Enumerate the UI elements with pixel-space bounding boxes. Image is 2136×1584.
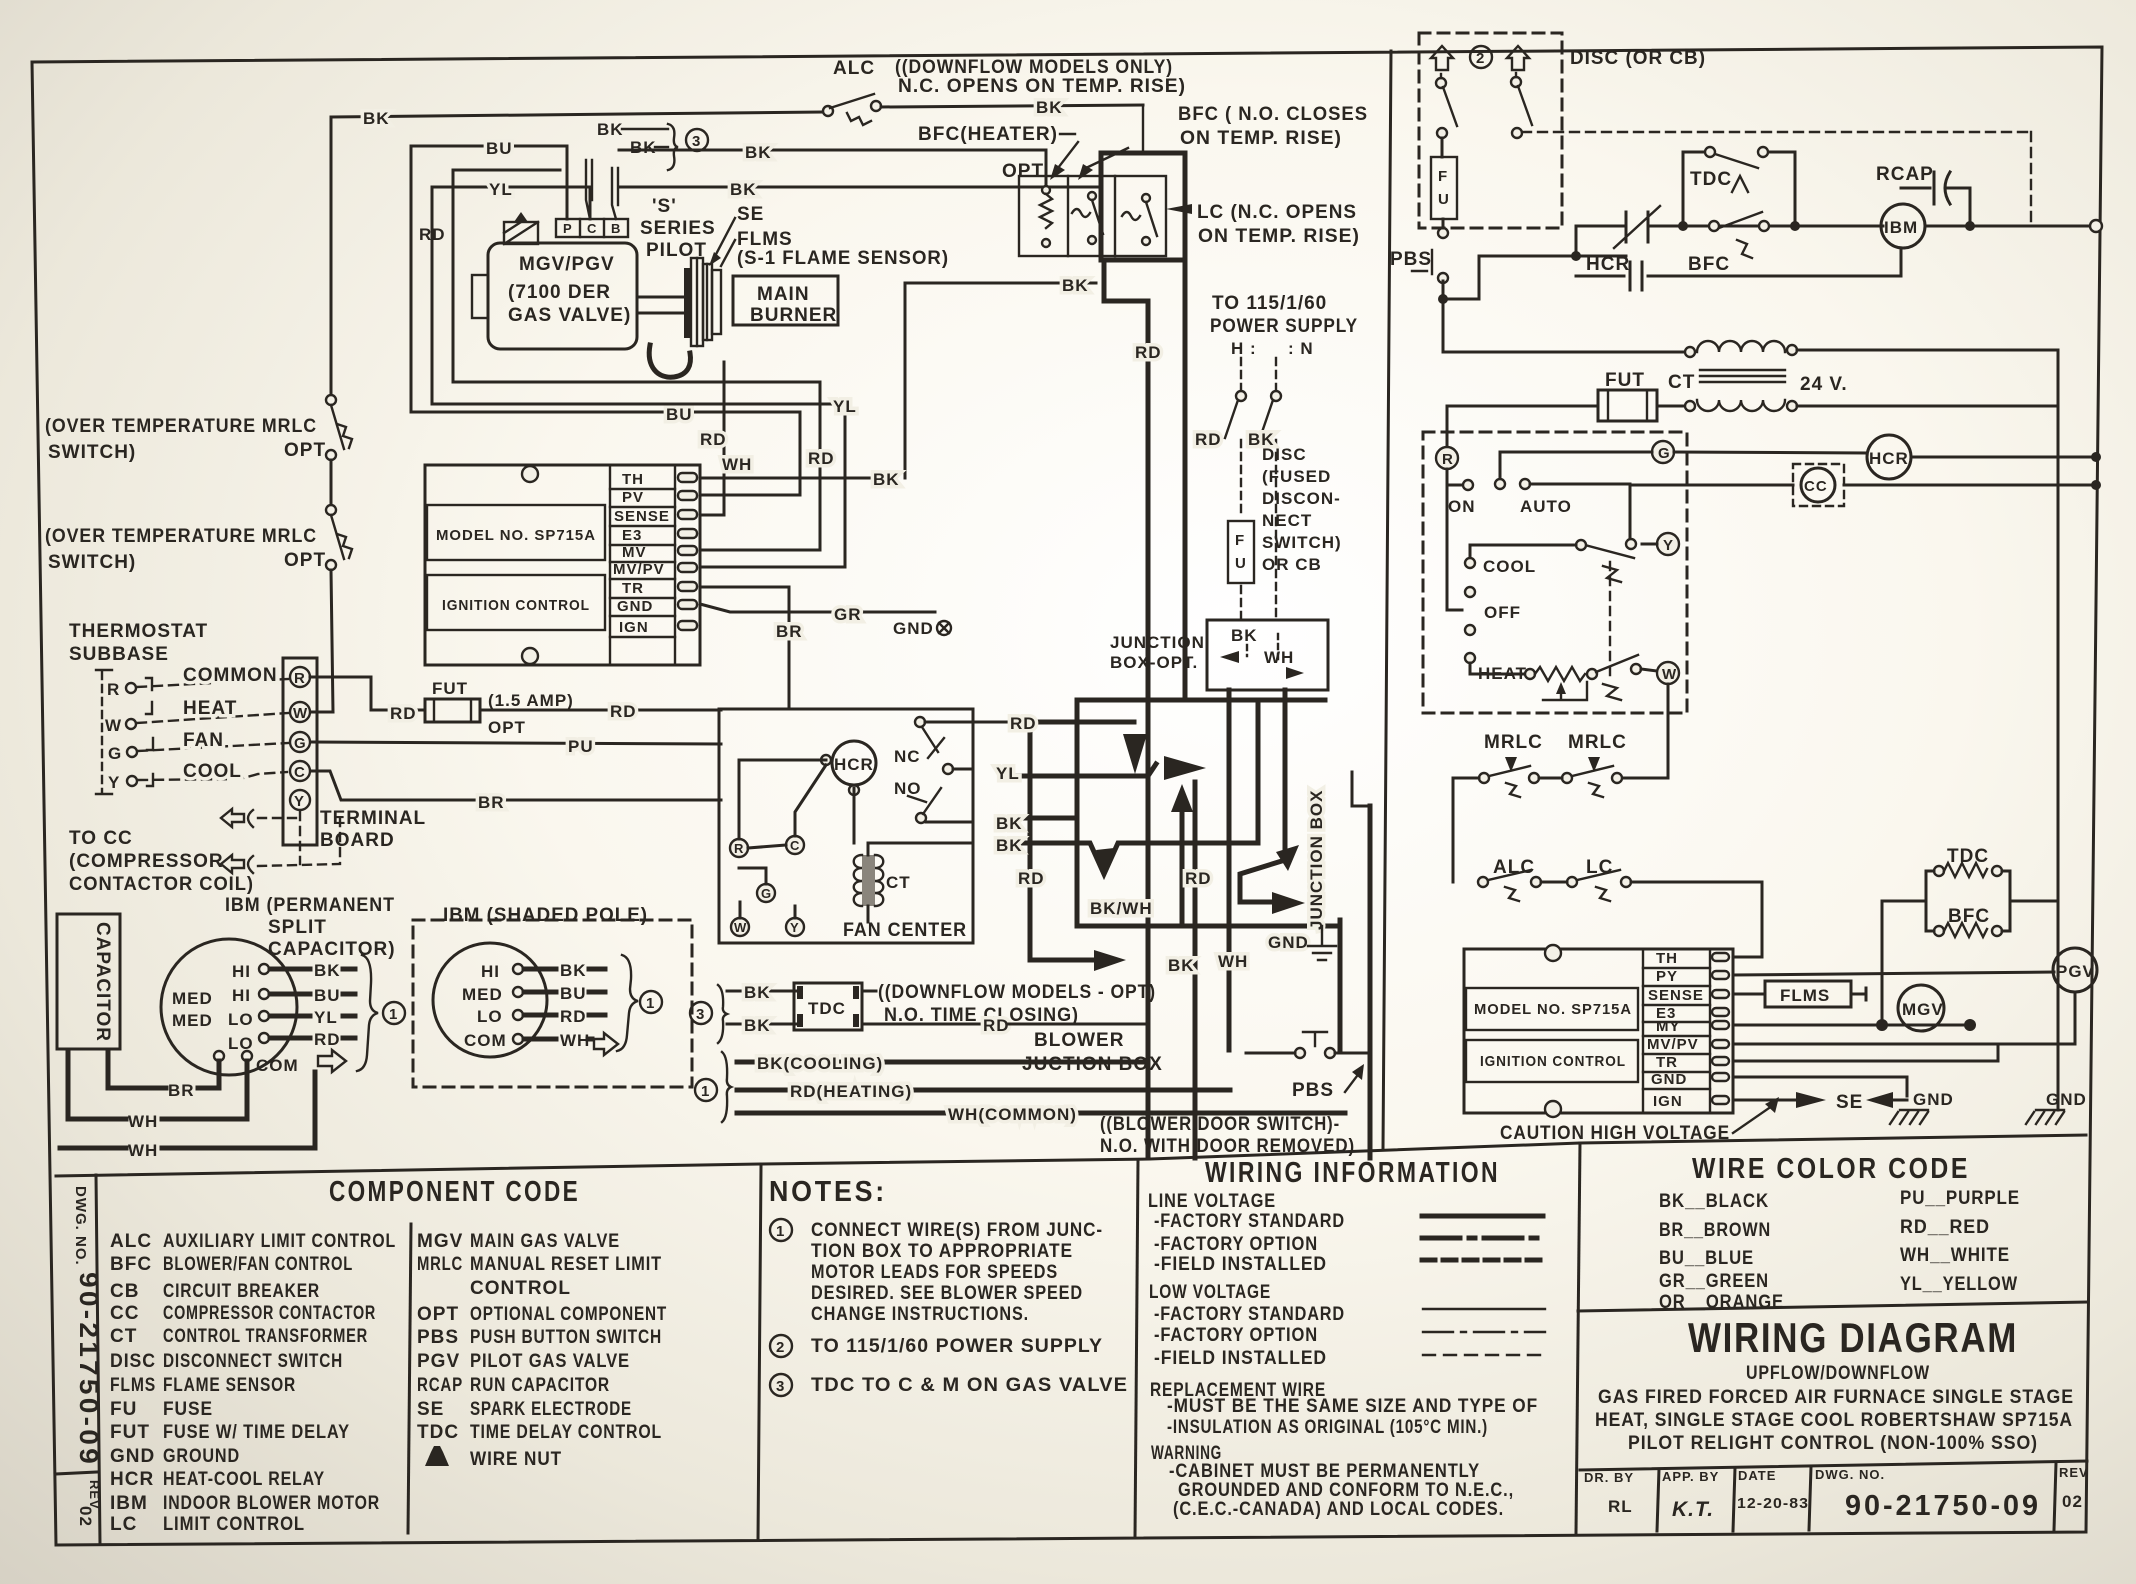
svg-text:SWITCH): SWITCH) <box>1262 533 1342 552</box>
svg-text:HCR: HCR <box>1869 449 1909 468</box>
svg-text:SE: SE <box>1836 1092 1863 1113</box>
svg-text:YL: YL <box>996 764 1020 783</box>
svg-text:G: G <box>108 744 122 763</box>
svg-text:MGV: MGV <box>417 1231 463 1252</box>
svg-text:RL: RL <box>1608 1497 1633 1516</box>
svg-text:GND: GND <box>1268 933 1309 952</box>
svg-text:COOL: COOL <box>1483 557 1536 576</box>
svg-text:F: F <box>1235 532 1245 549</box>
svg-text:Y: Y <box>108 773 120 792</box>
svg-text:SE: SE <box>737 204 764 225</box>
svg-text:R: R <box>107 680 120 699</box>
svg-text:GND: GND <box>617 598 653 615</box>
svg-text:BOX-OPT.: BOX-OPT. <box>1110 653 1198 672</box>
svg-text:C: C <box>587 221 597 236</box>
svg-text:JUNCTION BOX: JUNCTION BOX <box>1307 790 1326 930</box>
svg-text:BK(COOLING): BK(COOLING) <box>757 1054 883 1073</box>
svg-text:MED: MED <box>172 989 213 1008</box>
svg-text:IGNITION CONTROL: IGNITION CONTROL <box>1480 1053 1626 1070</box>
svg-text:RUN CAPACITOR: RUN CAPACITOR <box>470 1375 610 1396</box>
svg-text:REV: REV <box>2059 1465 2089 1480</box>
svg-text:OPT: OPT <box>488 718 526 737</box>
svg-text:24 V.: 24 V. <box>1800 374 1848 395</box>
svg-text:-FACTORY STANDARD: -FACTORY STANDARD <box>1154 1211 1345 1232</box>
svg-text:GND: GND <box>893 619 934 638</box>
svg-text:MODEL NO. SP715A: MODEL NO. SP715A <box>436 527 596 544</box>
svg-text:MAIN: MAIN <box>757 284 810 305</box>
svg-text:COMMON: COMMON <box>183 665 278 686</box>
svg-text:YL__YELLOW: YL__YELLOW <box>1900 1274 2018 1295</box>
svg-text:COOL: COOL <box>183 761 242 782</box>
svg-text:RD: RD <box>1195 430 1222 449</box>
svg-text:OFF: OFF <box>1484 603 1521 622</box>
svg-text:IBM: IBM <box>110 1493 148 1514</box>
svg-text:BFC ( N.O. CLOSES: BFC ( N.O. CLOSES <box>1178 104 1368 125</box>
svg-text:HCR: HCR <box>834 755 874 774</box>
svg-text:HEAT-COOL RELAY: HEAT-COOL RELAY <box>163 1469 325 1490</box>
svg-text:BK: BK <box>996 836 1023 855</box>
svg-text:ON: ON <box>1448 497 1476 516</box>
svg-text:MV/PV: MV/PV <box>613 561 665 578</box>
svg-text:LO: LO <box>477 1007 503 1026</box>
svg-text:COMPONENT CODE: COMPONENT CODE <box>329 1176 580 1208</box>
svg-text:CONTACTOR COIL): CONTACTOR COIL) <box>69 874 254 895</box>
svg-text:BK: BK <box>630 138 657 157</box>
svg-text:NECT: NECT <box>1262 511 1312 530</box>
svg-text:SENSE: SENSE <box>614 508 670 525</box>
svg-text:TDC: TDC <box>1690 169 1732 190</box>
svg-text:BK: BK <box>1168 956 1195 975</box>
svg-text:CAUTION HIGH VOLTAGE: CAUTION HIGH VOLTAGE <box>1500 1123 1730 1144</box>
svg-text:TH: TH <box>1656 950 1678 967</box>
svg-text:LO: LO <box>228 1010 254 1029</box>
svg-text:PV: PV <box>622 489 644 506</box>
svg-text:LO: LO <box>228 1034 254 1053</box>
svg-text:3: 3 <box>692 133 701 150</box>
svg-text:ALC: ALC <box>833 58 875 79</box>
svg-text:WH: WH <box>128 1112 158 1131</box>
svg-text:OPTIONAL COMPONENT: OPTIONAL COMPONENT <box>470 1304 667 1325</box>
svg-text:12-20-83: 12-20-83 <box>1737 1495 1809 1512</box>
svg-text:LC (N.C. OPENS: LC (N.C. OPENS <box>1197 202 1357 223</box>
svg-text:WH__WHITE: WH__WHITE <box>1900 1245 2010 1266</box>
svg-text:COM: COM <box>256 1056 299 1075</box>
svg-text:BFC: BFC <box>1948 906 1990 927</box>
svg-text:BK__BLACK: BK__BLACK <box>1659 1191 1769 1212</box>
svg-text:CC: CC <box>110 1303 139 1324</box>
svg-text:R: R <box>734 841 744 856</box>
svg-text:Y: Y <box>790 920 800 935</box>
svg-text:3: 3 <box>776 1378 785 1395</box>
svg-text:90-21750-09: 90-21750-09 <box>1845 1490 2041 1522</box>
svg-text:(1.5 AMP): (1.5 AMP) <box>488 691 574 710</box>
svg-text:: N: : N <box>1288 339 1314 358</box>
svg-text:MV: MV <box>622 544 647 561</box>
svg-text:MV/PV: MV/PV <box>1647 1036 1699 1053</box>
svg-text:((DOWNFLOW MODELS ONLY): ((DOWNFLOW MODELS ONLY) <box>895 57 1173 78</box>
svg-text:GND: GND <box>2046 1090 2087 1109</box>
svg-text:CT: CT <box>110 1326 137 1347</box>
svg-text:BK: BK <box>1231 626 1258 645</box>
svg-text:TR: TR <box>622 580 644 597</box>
svg-text:PGV: PGV <box>2056 962 2095 981</box>
svg-text:RCAP: RCAP <box>1876 164 1934 185</box>
svg-text:IGNITION CONTROL: IGNITION CONTROL <box>442 597 590 614</box>
svg-text:AUXILIARY LIMIT CONTROL: AUXILIARY LIMIT CONTROL <box>163 1231 396 1252</box>
svg-text:PBS: PBS <box>417 1327 459 1348</box>
svg-text:BLOWER: BLOWER <box>1034 1030 1124 1051</box>
svg-text:COM: COM <box>464 1031 507 1050</box>
svg-text:LOW VOLTAGE: LOW VOLTAGE <box>1149 1282 1271 1303</box>
svg-text:3: 3 <box>696 1006 705 1023</box>
svg-text:GND: GND <box>1651 1071 1687 1088</box>
svg-text:P: P <box>563 221 573 236</box>
svg-text:LIMIT CONTROL: LIMIT CONTROL <box>163 1514 305 1535</box>
svg-text:BU: BU <box>314 986 341 1005</box>
svg-text:2: 2 <box>776 1339 785 1356</box>
svg-text:MANUAL RESET LIMIT: MANUAL RESET LIMIT <box>470 1254 662 1275</box>
svg-text:RD(HEATING): RD(HEATING) <box>790 1082 912 1101</box>
svg-text:GROUND: GROUND <box>163 1446 240 1467</box>
svg-text:W: W <box>105 716 122 735</box>
svg-text:E3: E3 <box>622 527 642 544</box>
svg-text:02: 02 <box>2062 1492 2083 1511</box>
svg-text:GND: GND <box>1913 1090 1954 1109</box>
svg-text:FLMS: FLMS <box>110 1375 156 1396</box>
svg-text:FUT: FUT <box>1605 370 1645 391</box>
svg-text:TERMINAL: TERMINAL <box>320 808 426 829</box>
svg-text:OPT: OPT <box>284 440 326 461</box>
svg-text:02: 02 <box>76 1506 95 1527</box>
svg-text:RD: RD <box>419 225 446 244</box>
svg-text:C: C <box>294 764 306 781</box>
svg-text:WH: WH <box>722 455 752 474</box>
svg-text:Y: Y <box>1663 537 1674 554</box>
svg-text:ON TEMP. RISE): ON TEMP. RISE) <box>1198 226 1360 247</box>
svg-text:WH: WH <box>1218 952 1248 971</box>
svg-text:PILOT GAS VALVE: PILOT GAS VALVE <box>470 1351 630 1372</box>
svg-text:DESIRED. SEE BLOWER SPEED: DESIRED. SEE BLOWER SPEED <box>811 1283 1083 1304</box>
svg-text:RD: RD <box>700 430 727 449</box>
svg-text:PBS: PBS <box>1292 1080 1334 1101</box>
svg-text:PU: PU <box>568 737 594 756</box>
svg-text:BK: BK <box>1036 98 1063 117</box>
svg-text:N.C. OPENS ON TEMP. RISE): N.C. OPENS ON TEMP. RISE) <box>898 76 1186 97</box>
svg-text:-FIELD INSTALLED: -FIELD INSTALLED <box>1154 1254 1327 1275</box>
svg-text:PGV: PGV <box>417 1351 460 1372</box>
svg-text:CHANGE INSTRUCTIONS.: CHANGE INSTRUCTIONS. <box>811 1304 1029 1325</box>
svg-text:FAN: FAN <box>183 730 224 751</box>
svg-text:BK: BK <box>1062 276 1089 295</box>
svg-text:CT: CT <box>1668 372 1695 393</box>
svg-text:-FACTORY OPTION: -FACTORY OPTION <box>1154 1325 1318 1346</box>
svg-text:CIRCUIT BREAKER: CIRCUIT BREAKER <box>163 1281 320 1302</box>
svg-text:BK: BK <box>314 961 341 980</box>
svg-text:BLOWER/FAN CONTROL: BLOWER/FAN CONTROL <box>163 1254 353 1275</box>
svg-text:Y: Y <box>294 793 305 810</box>
svg-text:BK: BK <box>745 143 772 162</box>
svg-text:FLMS: FLMS <box>1780 986 1830 1005</box>
svg-text:W: W <box>734 920 747 935</box>
svg-text:TION BOX TO APPROPRIATE: TION BOX TO APPROPRIATE <box>811 1241 1073 1262</box>
svg-text:RD: RD <box>390 704 417 723</box>
svg-text:MGV: MGV <box>1902 1000 1944 1019</box>
svg-text:1: 1 <box>701 1083 710 1100</box>
svg-text:AUTO: AUTO <box>1520 497 1572 516</box>
svg-text:(C.E.C.-CANADA) AND LOCAL CODE: (C.E.C.-CANADA) AND LOCAL CODES. <box>1173 1499 1504 1520</box>
svg-text:PUSH BUTTON SWITCH: PUSH BUTTON SWITCH <box>470 1327 662 1348</box>
svg-text:CONNECT WIRE(S) FROM JUNC-: CONNECT WIRE(S) FROM JUNC- <box>811 1220 1103 1241</box>
svg-text:WIRING INFORMATION: WIRING INFORMATION <box>1205 1157 1500 1189</box>
svg-text:DISC: DISC <box>1262 445 1307 464</box>
svg-text:SERIES: SERIES <box>640 218 716 239</box>
svg-text:(FUSED: (FUSED <box>1262 467 1331 486</box>
svg-text:RD__RED: RD__RED <box>1900 1217 1990 1238</box>
svg-text:TO 115/1/60 POWER SUPPLY: TO 115/1/60 POWER SUPPLY <box>811 1336 1103 1357</box>
svg-text:PY: PY <box>1656 968 1678 985</box>
svg-text:MRLC: MRLC <box>1484 732 1543 753</box>
svg-text:BK: BK <box>873 470 900 489</box>
svg-text:G: G <box>1658 445 1671 462</box>
svg-text:CB: CB <box>110 1281 139 1302</box>
svg-text:BK: BK <box>363 109 390 128</box>
svg-text:'S': 'S' <box>652 196 677 217</box>
svg-text:FLMS: FLMS <box>737 229 793 250</box>
svg-text:-FIELD INSTALLED: -FIELD INSTALLED <box>1154 1348 1327 1369</box>
svg-text:FLAME SENSOR: FLAME SENSOR <box>163 1375 296 1396</box>
svg-text:FUSE: FUSE <box>163 1399 213 1420</box>
svg-text:HCR: HCR <box>110 1469 154 1490</box>
svg-text:OR CB: OR CB <box>1262 555 1322 574</box>
svg-text:RD: RD <box>314 1030 341 1049</box>
svg-text:FUT: FUT <box>110 1422 150 1443</box>
svg-text:WIRE COLOR CODE: WIRE COLOR CODE <box>1692 1153 1970 1185</box>
svg-text:RD: RD <box>808 449 835 468</box>
svg-text:TR: TR <box>1656 1054 1678 1071</box>
svg-text:OPT: OPT <box>417 1304 459 1325</box>
svg-text:H :: H : <box>1231 339 1257 358</box>
svg-text:FUSE W/ TIME DELAY: FUSE W/ TIME DELAY <box>163 1422 350 1443</box>
svg-text:BK: BK <box>560 961 587 980</box>
svg-text:GR__GREEN: GR__GREEN <box>1659 1271 1769 1292</box>
svg-text:IBM (PERMANENT: IBM (PERMANENT <box>225 895 395 916</box>
svg-text:YL: YL <box>314 1008 338 1027</box>
svg-text:FU: FU <box>110 1399 137 1420</box>
svg-text:FAN CENTER: FAN CENTER <box>843 920 967 941</box>
svg-text:MRLC: MRLC <box>417 1254 463 1275</box>
svg-text:DISCON-: DISCON- <box>1262 489 1341 508</box>
svg-text:DISC (OR CB): DISC (OR CB) <box>1570 48 1706 69</box>
svg-text:BK: BK <box>744 1016 771 1035</box>
svg-text:1: 1 <box>646 995 655 1012</box>
svg-text:SENSE: SENSE <box>1648 987 1704 1004</box>
svg-text:(COMPRESSOR: (COMPRESSOR <box>69 851 224 872</box>
svg-text:DR. BY: DR. BY <box>1584 1470 1634 1485</box>
svg-text:WIRING DIAGRAM: WIRING DIAGRAM <box>1688 1314 2018 1361</box>
svg-text:INDOOR BLOWER MOTOR: INDOOR BLOWER MOTOR <box>163 1493 380 1514</box>
svg-text:NOTES:: NOTES: <box>769 1176 887 1208</box>
svg-text:B: B <box>611 221 621 236</box>
svg-text:G: G <box>761 886 772 901</box>
svg-text:BK: BK <box>730 180 757 199</box>
svg-text:ON TEMP. RISE): ON TEMP. RISE) <box>1180 128 1342 149</box>
svg-text:BU: BU <box>666 405 693 424</box>
svg-text:SE: SE <box>417 1399 444 1420</box>
svg-text:TDC: TDC <box>1947 846 1989 867</box>
svg-text:(S-1 FLAME SENSOR): (S-1 FLAME SENSOR) <box>737 248 949 269</box>
svg-text:MOTOR LEADS FOR SPEEDS: MOTOR LEADS FOR SPEEDS <box>811 1262 1058 1283</box>
svg-text:BFC(HEATER): BFC(HEATER) <box>918 124 1058 145</box>
svg-text:DISCONNECT SWITCH: DISCONNECT SWITCH <box>163 1351 343 1372</box>
svg-text:DWG. NO.: DWG. NO. <box>1815 1467 1885 1482</box>
svg-text:-CABINET MUST BE PERMANENTLY: -CABINET MUST BE PERMANENTLY <box>1169 1461 1480 1482</box>
svg-text:-MUST BE THE SAME SIZE AND TYP: -MUST BE THE SAME SIZE AND TYPE OF <box>1167 1396 1538 1417</box>
svg-text:BR: BR <box>478 793 505 812</box>
svg-text:MRLC: MRLC <box>1568 732 1627 753</box>
svg-text:PILOT RELIGHT CONTROL (NON-100: PILOT RELIGHT CONTROL (NON-100% SSO) <box>1628 1433 2038 1454</box>
svg-text:CAPACITOR): CAPACITOR) <box>268 939 396 960</box>
svg-text:YL: YL <box>833 397 857 416</box>
svg-text:HEAT: HEAT <box>183 698 237 719</box>
svg-text:BK: BK <box>744 983 771 1002</box>
svg-text:WIRE NUT: WIRE NUT <box>470 1449 562 1470</box>
svg-text:LC: LC <box>110 1514 137 1535</box>
svg-text:OPT: OPT <box>1002 161 1044 182</box>
svg-text:PBS: PBS <box>1390 249 1432 270</box>
svg-text:WH(COMMON): WH(COMMON) <box>948 1105 1077 1124</box>
svg-text:GAS FIRED FORCED AIR FURNACE S: GAS FIRED FORCED AIR FURNACE SINGLE STAG… <box>1598 1387 2074 1408</box>
svg-text:FUT: FUT <box>432 679 468 698</box>
svg-text:TDC: TDC <box>808 999 846 1018</box>
svg-text:MAIN GAS VALVE: MAIN GAS VALVE <box>470 1231 620 1252</box>
svg-text:BK: BK <box>597 120 624 139</box>
svg-text:U: U <box>1438 191 1450 208</box>
svg-text:MY: MY <box>1656 1018 1681 1035</box>
svg-text:SPLIT: SPLIT <box>268 917 327 938</box>
svg-text:BU: BU <box>560 984 587 1003</box>
svg-text:MODEL NO. SP715A: MODEL NO. SP715A <box>1474 1001 1632 1018</box>
svg-text:ALC: ALC <box>110 1231 152 1252</box>
svg-text:HI: HI <box>232 986 251 1005</box>
svg-text:BOARD: BOARD <box>320 830 395 851</box>
svg-text:COMPRESSOR CONTACTOR: COMPRESSOR CONTACTOR <box>163 1303 376 1324</box>
svg-text:GR: GR <box>834 605 862 624</box>
svg-text:BFC: BFC <box>1688 254 1730 275</box>
svg-text:GAS VALVE): GAS VALVE) <box>508 305 631 326</box>
svg-text:IGN: IGN <box>1653 1093 1683 1110</box>
svg-text:BU: BU <box>486 139 513 158</box>
svg-text:YL: YL <box>489 180 513 199</box>
svg-text:R: R <box>1442 451 1454 468</box>
svg-text:POWER SUPPLY: POWER SUPPLY <box>1210 316 1358 337</box>
svg-text:OPT: OPT <box>284 550 326 571</box>
svg-text:-FACTORY OPTION: -FACTORY OPTION <box>1154 1234 1318 1255</box>
svg-text:RD: RD <box>983 1016 1010 1035</box>
svg-text:-INSULATION AS ORIGINAL (105°C: -INSULATION AS ORIGINAL (105°C MIN.) <box>1167 1417 1488 1438</box>
svg-text:W: W <box>1662 666 1677 683</box>
svg-text:90-21750-09: 90-21750-09 <box>74 1272 104 1467</box>
svg-text:GND: GND <box>110 1446 155 1467</box>
svg-text:SUBBASE: SUBBASE <box>69 644 169 665</box>
svg-text:SWITCH): SWITCH) <box>48 552 136 573</box>
svg-text:BK/WH: BK/WH <box>1090 899 1153 918</box>
svg-text:RCAP: RCAP <box>417 1375 463 1396</box>
svg-text:BR__BROWN: BR__BROWN <box>1659 1220 1771 1241</box>
svg-text:IBM (SHADED POLE): IBM (SHADED POLE) <box>443 905 648 926</box>
svg-text:TO 115/1/60: TO 115/1/60 <box>1212 293 1327 314</box>
svg-text:BURNER: BURNER <box>750 305 837 326</box>
svg-text:WH: WH <box>128 1141 158 1160</box>
svg-text:APP. BY: APP. BY <box>1662 1469 1719 1484</box>
svg-text:BR: BR <box>776 622 803 641</box>
svg-text:CAPACITOR: CAPACITOR <box>92 922 113 1042</box>
svg-text:RD: RD <box>1010 714 1037 733</box>
svg-text:RD: RD <box>560 1007 587 1026</box>
svg-text:UPFLOW/DOWNFLOW: UPFLOW/DOWNFLOW <box>1746 1363 1930 1384</box>
svg-text:BFC: BFC <box>110 1254 152 1275</box>
svg-text:GROUNDED AND CONFORM TO N.E.C.: GROUNDED AND CONFORM TO N.E.C., <box>1178 1480 1514 1501</box>
svg-text:JUNCTION: JUNCTION <box>1110 633 1205 652</box>
svg-text:TDC TO C & M ON GAS VALVE: TDC TO C & M ON GAS VALVE <box>811 1375 1128 1396</box>
svg-text:SPARK ELECTRODE: SPARK ELECTRODE <box>470 1399 632 1420</box>
svg-text:CT: CT <box>886 873 911 892</box>
svg-text:K.T.: K.T. <box>1672 1498 1714 1521</box>
svg-text:TIME DELAY CONTROL: TIME DELAY CONTROL <box>470 1422 662 1443</box>
svg-text:TH: TH <box>622 471 644 488</box>
svg-text:CONTROL: CONTROL <box>470 1278 571 1299</box>
svg-text:NC: NC <box>894 747 921 766</box>
svg-text:CONTROL TRANSFORMER: CONTROL TRANSFORMER <box>163 1326 368 1347</box>
svg-text:N.O. WITH DOOR REMOVED): N.O. WITH DOOR REMOVED) <box>1100 1136 1355 1157</box>
svg-text:HI: HI <box>232 962 251 981</box>
svg-text:DISC: DISC <box>110 1351 156 1372</box>
svg-text:(OVER TEMPERATURE MRLC: (OVER TEMPERATURE MRLC <box>45 526 317 547</box>
svg-text:1: 1 <box>776 1223 785 1240</box>
svg-text:IBM: IBM <box>1884 218 1918 237</box>
svg-text:HEAT, SINGLE STAGE COOL ROBERT: HEAT, SINGLE STAGE COOL ROBERTSHAW SP715… <box>1595 1410 2073 1431</box>
svg-text:RD: RD <box>1135 343 1162 362</box>
svg-text:R: R <box>294 670 306 687</box>
svg-text:IGN: IGN <box>619 619 649 636</box>
svg-text:C: C <box>790 838 800 853</box>
svg-text:BU__BLUE: BU__BLUE <box>1659 1248 1754 1269</box>
svg-text:MED: MED <box>172 1011 213 1030</box>
svg-text:PILOT: PILOT <box>646 240 707 261</box>
svg-text:TDC: TDC <box>417 1422 459 1443</box>
svg-text:DWG. NO.: DWG. NO. <box>72 1186 89 1266</box>
svg-text:MED: MED <box>462 985 503 1004</box>
svg-text:BK: BK <box>996 814 1023 833</box>
svg-text:(OVER TEMPERATURE MRLC: (OVER TEMPERATURE MRLC <box>45 416 317 437</box>
svg-text:((BLOWER DOOR SWITCH)-: ((BLOWER DOOR SWITCH)- <box>1100 1114 1340 1135</box>
svg-text:W: W <box>293 705 308 722</box>
svg-text:CC: CC <box>1804 478 1828 495</box>
svg-text:1: 1 <box>389 1006 398 1023</box>
svg-text:DATE: DATE <box>1738 1468 1776 1483</box>
svg-text:MGV/PGV: MGV/PGV <box>519 254 615 275</box>
svg-text:RD: RD <box>610 702 637 721</box>
svg-text:(7100 DER: (7100 DER <box>508 282 611 303</box>
svg-text:F: F <box>1438 168 1448 185</box>
svg-text:TO CC: TO CC <box>69 828 133 849</box>
svg-text:PU__PURPLE: PU__PURPLE <box>1900 1188 2020 1209</box>
svg-text:HI: HI <box>481 962 500 981</box>
svg-text:LINE VOLTAGE: LINE VOLTAGE <box>1148 1191 1276 1212</box>
svg-text:2: 2 <box>1476 50 1485 67</box>
svg-text:G: G <box>294 735 307 752</box>
svg-text:THERMOSTAT: THERMOSTAT <box>69 621 208 642</box>
svg-text:BR: BR <box>168 1081 195 1100</box>
